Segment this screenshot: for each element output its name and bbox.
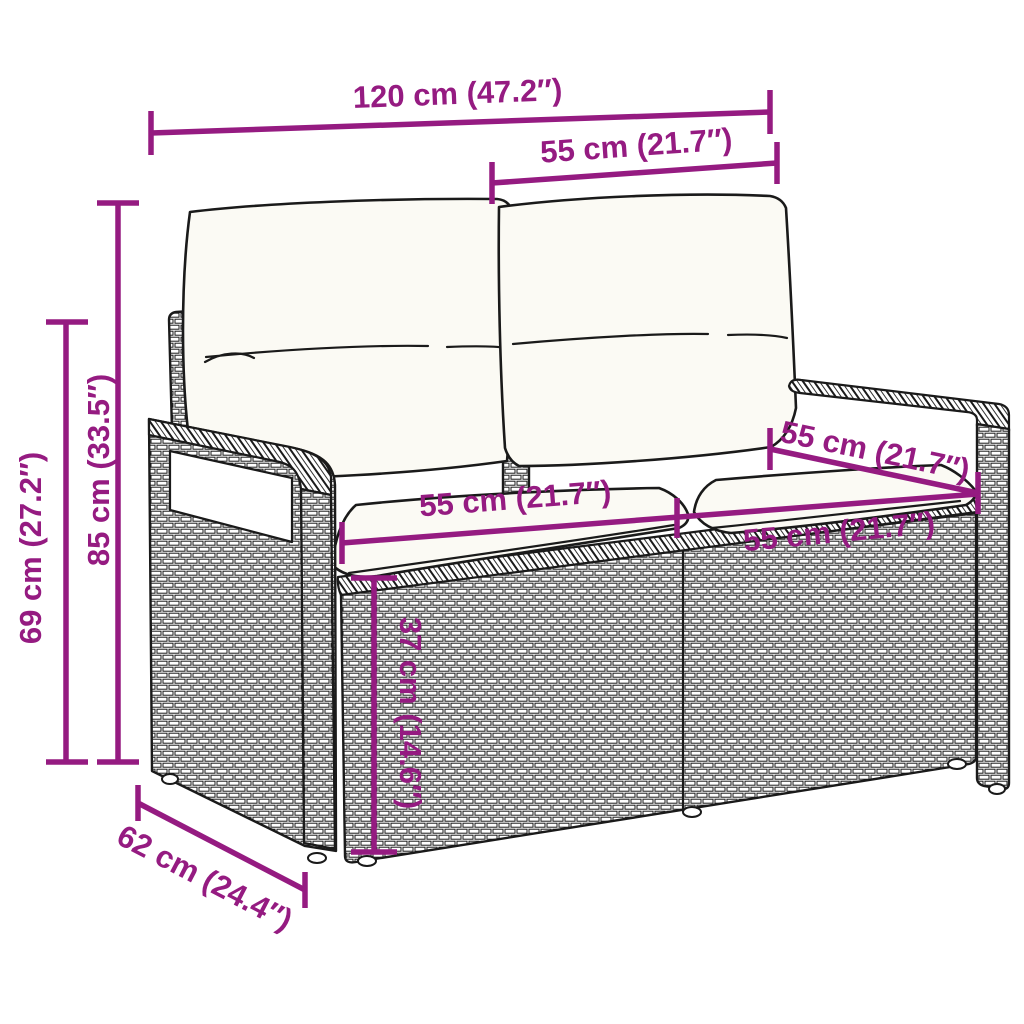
diagram-canvas: 120 cm (47.2″) 55 cm (21.7″) 85 cm (33.5… xyxy=(0,0,1024,1024)
product-dimension-diagram: 120 cm (47.2″) 55 cm (21.7″) 85 cm (33.5… xyxy=(0,0,1024,1024)
dim-overall-width-label: 120 cm (47.2″) xyxy=(352,72,563,115)
right-armrest-post xyxy=(977,424,1009,789)
dim-seat-height-label: 37 cm (14.6″) xyxy=(393,617,428,809)
dim-total-height-label: 85 cm (33.5″) xyxy=(81,374,116,566)
sofa-foot xyxy=(308,853,326,863)
sofa-foot xyxy=(358,856,376,866)
left-armrest-post xyxy=(301,489,335,849)
sofa-foot xyxy=(989,784,1005,794)
dim-backrest-section-width-label: 55 cm (21.7″) xyxy=(539,121,733,169)
sofa-foot xyxy=(162,774,178,784)
dim-total-height: 85 cm (33.5″) xyxy=(81,203,139,762)
dim-backrest-section-width: 55 cm (21.7″) xyxy=(492,121,777,204)
back-cushion-right xyxy=(499,195,796,466)
sofa-foot xyxy=(948,759,966,769)
sofa-foot xyxy=(683,807,701,817)
dim-armrest-height-label: 69 cm (27.2″) xyxy=(13,452,48,644)
dim-armrest-height: 69 cm (27.2″) xyxy=(13,322,88,762)
